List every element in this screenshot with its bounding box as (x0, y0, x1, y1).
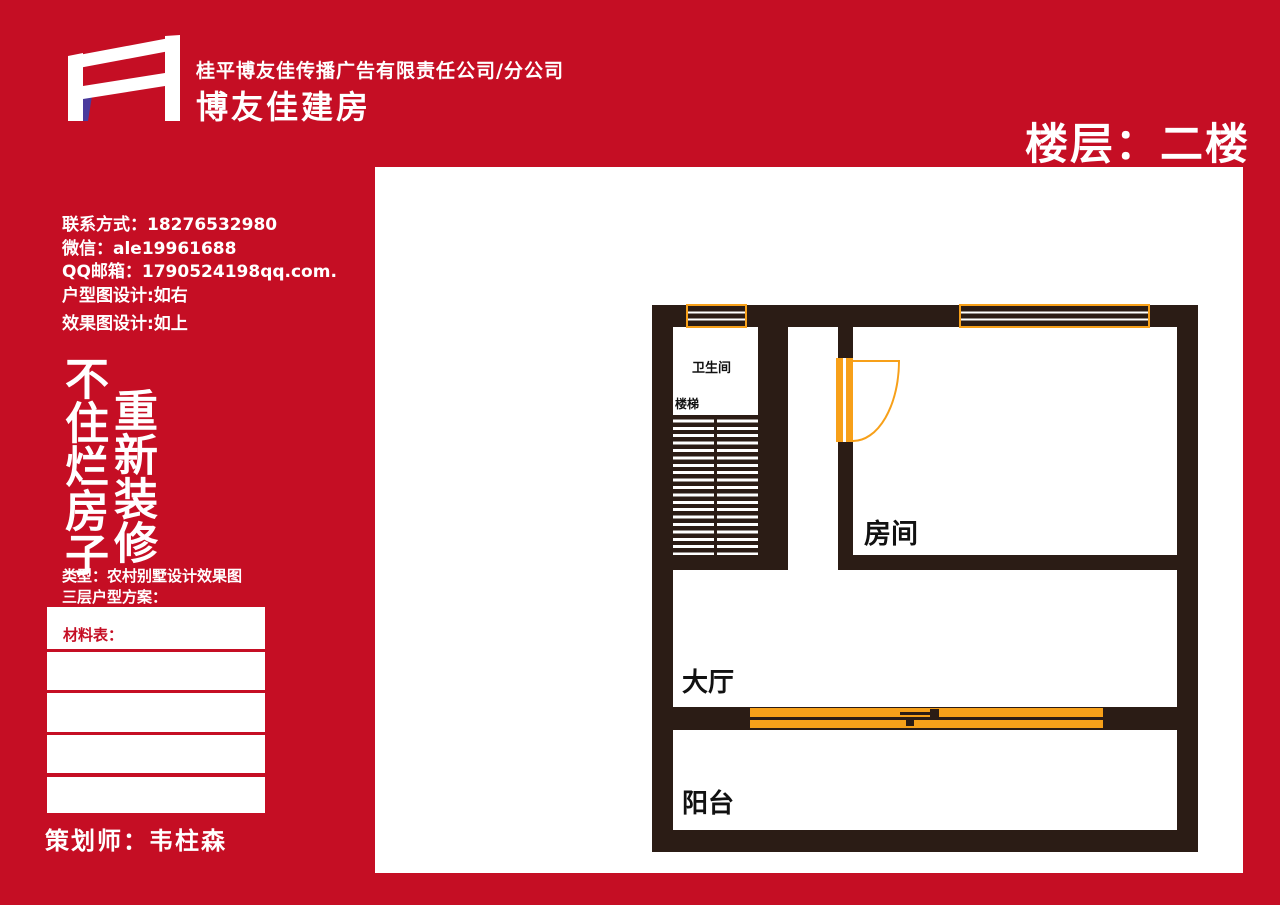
window-icon (959, 304, 1150, 328)
window-icon (686, 304, 747, 328)
company-logo-icon (58, 33, 183, 125)
project-type-line: 类型：农村别墅设计效果图 (62, 566, 242, 587)
material-table-row (47, 693, 265, 732)
outer-wall-right (1177, 305, 1198, 852)
company-name: 桂平博友佳传播广告有限责任公司/分公司 (196, 56, 564, 83)
room-wall-bottom (838, 555, 1198, 570)
sliding-door-track (750, 717, 1103, 720)
contact-plan-note: 户型图设计:如右 (62, 285, 337, 309)
room-label-stairs: 楼梯 (675, 395, 699, 412)
material-table-row (47, 777, 265, 813)
material-table-row (47, 735, 265, 773)
outer-wall-left (652, 305, 673, 852)
room-label-bathroom: 卫生间 (692, 357, 731, 376)
outer-wall-bottom (652, 830, 1198, 852)
sliding-door-panel (900, 712, 932, 715)
contact-qq: QQ邮箱：1790524198qq.com. (62, 261, 337, 285)
floorplan-canvas: 卫生间 楼梯 房间 大厅 阳台 (375, 167, 1243, 873)
slogan-column-right: 重新装修 (108, 388, 154, 578)
project-info-block: 类型：农村别墅设计效果图 三层户型方案： (62, 566, 242, 608)
sliding-door-handle (930, 709, 939, 718)
sliding-door-icon (750, 708, 1103, 728)
room-label-balcony: 阳台 (682, 783, 734, 820)
material-table-label: 材料表： (63, 624, 123, 645)
staircase-center-line (714, 415, 717, 555)
contact-phone: 联系方式：18276532980 (62, 214, 337, 238)
slogan-column-left: 不住烂房子 (59, 356, 105, 576)
contact-block: 联系方式：18276532980 微信：ale19961688 QQ邮箱：179… (62, 214, 337, 337)
planner-credit: 策划师：韦柱森 (45, 821, 227, 856)
material-table-row (47, 652, 265, 690)
contact-wechat: 微信：ale19961688 (62, 238, 337, 262)
room-label-hall: 大厅 (682, 662, 734, 699)
door-swing-arc-icon (836, 356, 908, 448)
project-scheme-line: 三层户型方案： (62, 587, 242, 608)
room-wall-lower (838, 442, 853, 570)
floor-title: 楼层：二楼 (1025, 110, 1250, 172)
room-label-bedroom: 房间 (864, 512, 918, 551)
room-wall-upper (838, 327, 853, 358)
brand-name: 博友佳建房 (196, 82, 371, 128)
material-table-header-box: 材料表： (47, 607, 265, 649)
sliding-door-handle (906, 718, 914, 726)
staircase (673, 415, 758, 555)
contact-render-note: 效果图设计:如上 (62, 313, 337, 337)
